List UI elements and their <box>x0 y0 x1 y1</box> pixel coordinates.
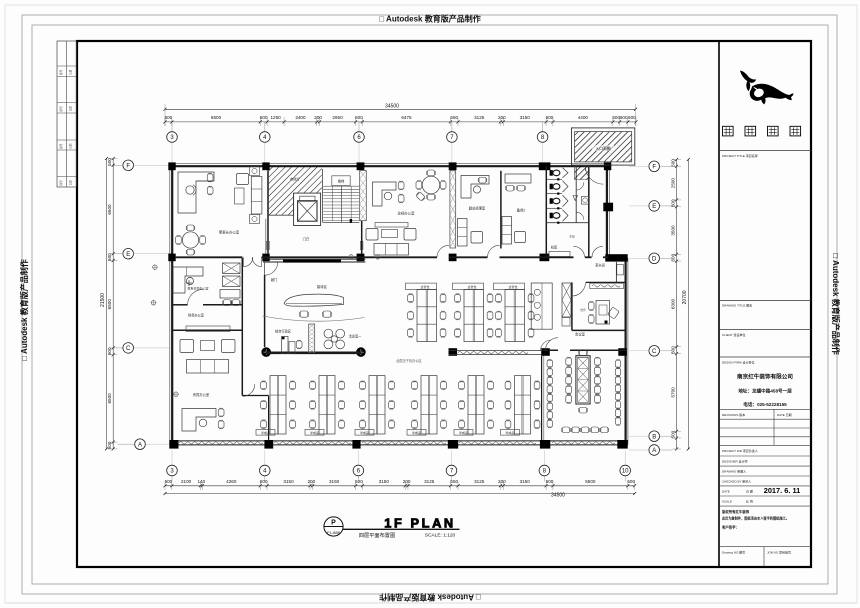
svg-text:D: D <box>652 257 657 263</box>
svg-text:500: 500 <box>627 479 635 484</box>
svg-text:电梯厅: 电梯厅 <box>290 177 301 182</box>
svg-text:备用2: 备用2 <box>517 208 526 213</box>
svg-text:C: C <box>652 349 657 355</box>
svg-text:2100: 2100 <box>181 479 192 484</box>
svg-text:34500: 34500 <box>551 493 565 499</box>
svg-text:3150: 3150 <box>379 479 390 484</box>
svg-text:PROJECT DIR 项目负责人: PROJECT DIR 项目负责人 <box>722 448 758 453</box>
svg-text:趟门: 趟门 <box>271 277 277 282</box>
svg-text:贵宾办公室: 贵宾办公室 <box>193 392 210 397</box>
svg-text:3150: 3150 <box>283 479 294 484</box>
svg-text:序号: 序号 <box>59 69 63 75</box>
svg-text:B: B <box>652 434 656 440</box>
svg-text:DESIGNER 设计师: DESIGNER 设计师 <box>722 459 748 464</box>
svg-text:500: 500 <box>107 253 112 261</box>
svg-text:电话：025-52228155: 电话：025-52228155 <box>743 401 787 408</box>
svg-text:日期: 日期 <box>68 180 72 186</box>
svg-text:6500: 6500 <box>211 115 222 120</box>
svg-text:财务: 财务 <box>580 308 586 312</box>
svg-text:半成品: 半成品 <box>412 430 421 435</box>
svg-text:500: 500 <box>670 430 675 438</box>
svg-text:10: 10 <box>622 469 629 475</box>
svg-text:2500: 2500 <box>670 178 675 189</box>
svg-text:CLIENT 建设单位: CLIENT 建设单位 <box>722 332 745 337</box>
svg-text:序号: 序号 <box>59 180 63 186</box>
svg-text:2400: 2400 <box>295 115 306 120</box>
svg-text:2650: 2650 <box>332 115 343 120</box>
svg-text:门厅: 门厅 <box>303 237 310 242</box>
svg-text:洽谈室一: 洽谈室一 <box>349 334 363 339</box>
svg-text:茶水间: 茶水间 <box>595 262 605 267</box>
svg-text:REVISIONS 版本: REVISIONS 版本 <box>722 412 745 417</box>
svg-text:A: A <box>652 448 656 454</box>
svg-text:入口雨棚: 入口雨棚 <box>595 146 610 151</box>
svg-text:半成品: 半成品 <box>360 430 369 435</box>
svg-text:200: 200 <box>498 479 506 484</box>
svg-text:500: 500 <box>165 479 173 484</box>
svg-text:副总经理室: 副总经理室 <box>469 206 486 211</box>
svg-text:半成品: 半成品 <box>261 430 270 435</box>
svg-text:机房: 机房 <box>551 245 557 250</box>
svg-text:3125: 3125 <box>474 115 485 120</box>
svg-text:主管位: 主管位 <box>467 284 476 289</box>
svg-text:□ Autodesk 教育版产品制作: □ Autodesk 教育版产品制作 <box>19 259 29 360</box>
svg-text:A: A <box>138 442 142 448</box>
svg-text:日期: 日期 <box>68 143 72 149</box>
svg-text:DRAWING 制图人: DRAWING 制图人 <box>722 469 746 474</box>
svg-text:500: 500 <box>107 158 112 166</box>
svg-text:版权所有红牛装饰: 版权所有红牛装饰 <box>722 509 750 514</box>
svg-text:20700: 20700 <box>682 290 688 304</box>
svg-text:500: 500 <box>260 115 268 120</box>
svg-text:日期: 日期 <box>68 69 72 75</box>
svg-text:6475: 6475 <box>401 115 412 120</box>
svg-text:DRAWING TITLE 图名: DRAWING TITLE 图名 <box>722 303 752 308</box>
svg-text:1F PLAN: 1F PLAN <box>384 516 456 531</box>
svg-text:E: E <box>652 204 656 210</box>
svg-text:500: 500 <box>670 253 675 261</box>
svg-text:条窗: 条窗 <box>569 235 575 239</box>
svg-text:日期: 日期 <box>68 106 72 112</box>
svg-text:500: 500 <box>355 479 363 484</box>
svg-text:3150: 3150 <box>520 115 531 120</box>
svg-text:此页为复制件，图纸须由本人签字的图纸施工。: 此页为复制件，图纸须由本人签字的图纸施工。 <box>722 516 789 521</box>
svg-text:□ Autodesk 教育版产品制作: □ Autodesk 教育版产品制作 <box>379 593 480 603</box>
svg-text:CHECKED BY 审定人: CHECKED BY 审定人 <box>722 479 751 484</box>
svg-text:四层平面布置图: 四层平面布置图 <box>359 531 395 539</box>
svg-text:楼梯: 楼梯 <box>338 179 345 184</box>
svg-text:半成品: 半成品 <box>459 430 468 435</box>
svg-text:南京红牛装饰有限公司: 南京红牛装饰有限公司 <box>737 373 793 381</box>
svg-text:P: P <box>331 520 336 527</box>
svg-text:200: 200 <box>307 479 315 484</box>
svg-text:综合行政区: 综合行政区 <box>275 329 292 334</box>
svg-text:600: 600 <box>628 115 636 120</box>
svg-text:3150: 3150 <box>329 479 340 484</box>
svg-text:□ Autodesk 教育版产品制作: □ Autodesk 教育版产品制作 <box>831 253 841 354</box>
svg-text:500: 500 <box>670 159 675 167</box>
svg-text:34500: 34500 <box>385 103 399 109</box>
svg-text:DESIGN FIRM 设计单位: DESIGN FIRM 设计单位 <box>722 360 755 365</box>
svg-text:6300: 6300 <box>670 298 675 309</box>
svg-text:500: 500 <box>165 115 173 120</box>
svg-text:140: 140 <box>198 479 206 484</box>
svg-text:4400: 4400 <box>578 115 589 120</box>
svg-text:F: F <box>652 165 656 171</box>
svg-text:1250: 1250 <box>270 115 281 120</box>
svg-text:500: 500 <box>260 479 268 484</box>
svg-text:500: 500 <box>670 346 675 354</box>
svg-text:3150: 3150 <box>520 479 531 484</box>
svg-text:总经办公室: 总经办公室 <box>398 211 416 216</box>
svg-text:200: 200 <box>403 479 411 484</box>
svg-text:董事长办公室: 董事长办公室 <box>219 230 240 235</box>
svg-text:21500: 21500 <box>100 293 106 307</box>
svg-text:SCALE: SCALE <box>722 500 732 504</box>
svg-text:F: F <box>126 164 130 170</box>
svg-text:500: 500 <box>107 347 112 355</box>
svg-text:500: 500 <box>355 115 363 120</box>
svg-text:500: 500 <box>546 479 554 484</box>
svg-text:6500: 6500 <box>107 393 112 404</box>
svg-text:半成品: 半成品 <box>505 430 514 435</box>
svg-text:JOB NO 项目编号: JOB NO 项目编号 <box>767 550 791 555</box>
svg-text:6500: 6500 <box>107 299 112 310</box>
svg-text:3125: 3125 <box>474 479 485 484</box>
svg-text:3125: 3125 <box>424 479 435 484</box>
svg-text:5500: 5500 <box>585 479 596 484</box>
svg-text:6500: 6500 <box>107 204 112 215</box>
svg-text:序号: 序号 <box>59 106 63 112</box>
svg-text:2017. 6. 11: 2017. 6. 11 <box>764 486 801 495</box>
svg-text:500: 500 <box>107 441 112 449</box>
svg-text:3500: 3500 <box>670 225 675 236</box>
svg-text:日 期: 日 期 <box>746 489 753 494</box>
svg-text:200: 200 <box>314 115 322 120</box>
svg-text:SCALE: 1:120: SCALE: 1:120 <box>425 533 456 539</box>
svg-text:Drawing NO 图号: Drawing NO 图号 <box>722 550 745 555</box>
svg-text:客户签字：: 客户签字： <box>721 525 739 530</box>
svg-text:财务主管办公室: 财务主管办公室 <box>187 286 208 291</box>
svg-text:□ Autodesk 教育版产品制作: □ Autodesk 教育版产品制作 <box>379 14 480 24</box>
svg-text:FL-888: FL-888 <box>327 530 340 535</box>
svg-text:财务办公室: 财务办公室 <box>188 313 204 318</box>
svg-text:DATE 日期: DATE 日期 <box>777 412 792 417</box>
svg-text:接待区: 接待区 <box>317 284 328 289</box>
svg-text:半成品: 半成品 <box>310 430 319 435</box>
svg-text:4260: 4260 <box>226 479 237 484</box>
svg-text:地址：龙蟠中路458号一层: 地址：龙蟠中路458号一层 <box>738 388 792 395</box>
svg-text:PROJECT TITLE 项目名称: PROJECT TITLE 项目名称 <box>722 153 758 158</box>
svg-text:200: 200 <box>498 115 506 120</box>
svg-text:E: E <box>126 252 130 258</box>
svg-text:比 例: 比 例 <box>746 499 753 504</box>
svg-text:此属无干扰办公区: 此属无干扰办公区 <box>396 358 422 363</box>
svg-text:主管位: 主管位 <box>420 284 429 289</box>
svg-text:序号: 序号 <box>59 143 63 149</box>
svg-text:500: 500 <box>546 115 554 120</box>
svg-text:600: 600 <box>620 115 628 120</box>
svg-text:C: C <box>126 346 131 352</box>
svg-text:550: 550 <box>450 115 458 120</box>
svg-text:5700: 5700 <box>670 387 675 398</box>
svg-text:会议室: 会议室 <box>575 331 586 336</box>
svg-text:DATE: DATE <box>722 490 730 494</box>
svg-text:主管位: 主管位 <box>508 284 517 289</box>
